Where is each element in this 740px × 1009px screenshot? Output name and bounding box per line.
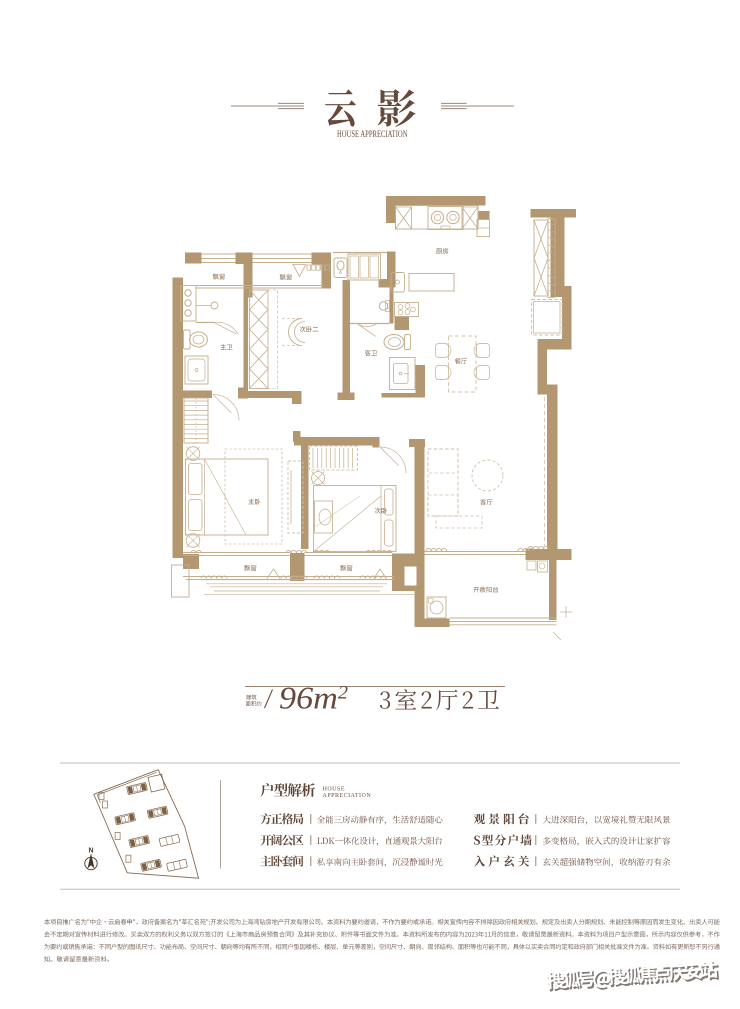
svg-text:N: N [88, 848, 93, 855]
svg-text:96m2: 96m2 [279, 680, 349, 716]
svg-text:HOUSE: HOUSE [323, 787, 346, 793]
svg-text:APPRECIATION: APPRECIATION [323, 793, 372, 799]
svg-text:HOUSE APPRECIATION: HOUSE APPRECIATION [337, 129, 408, 139]
